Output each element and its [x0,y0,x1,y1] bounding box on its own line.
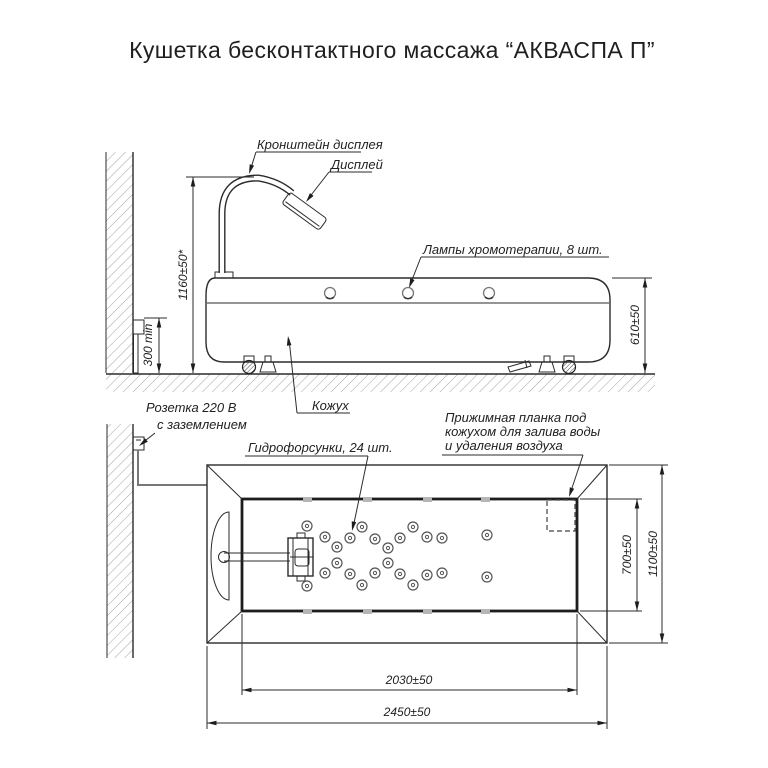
dim-1160-text: 1160±50* [176,249,190,300]
dimension-2030: 2030±50 [242,614,577,695]
label-lamps: Лампы хромотерапии, 8 шт. [407,242,609,289]
drawing-canvas: Кушетка бесконтактного массажа “АКВАСПА … [0,0,768,768]
dimension-700: 700±50 [580,499,642,611]
dim-2030-text: 2030±50 [385,673,433,687]
caster-wheel-right [563,356,576,374]
adjustable-foot-right [539,356,555,372]
hydro-nozzles [302,521,492,591]
wall-section-side [106,152,133,373]
socket-label-line1: Розетка 220 В [146,400,237,415]
display-head [282,192,327,230]
label-socket: Розетка 220 В с заземлением [138,400,247,448]
lamps-label: Лампы хромотерапии, 8 шт. [422,242,603,257]
headrest-ellipse [211,512,229,600]
dimension-610: 610±50 [612,278,652,373]
dim-2450-text: 2450±50 [383,705,431,719]
label-display: Дисплей [304,157,383,203]
floor-section-side [106,374,655,392]
side-view: Кронштейн дисплея Дисплей Лампы хромотер… [106,137,655,413]
nozzles-label: Гидрофорсунки, 24 шт. [248,440,393,455]
caster-wheel-left [243,356,256,374]
power-cable [138,450,207,485]
plate-label-line1: Прижимная планка под [445,410,586,425]
pressure-plate-dashed [547,500,575,531]
display-label: Дисплей [329,157,383,172]
dimension-300min: 300 min [141,318,167,373]
chromotherapy-lamp-icons [325,288,495,299]
cover-label: Кожух [312,398,349,413]
plate-label-line3: и удаления воздуха [445,438,563,453]
plate-label-line2: кожухом для залива воды [445,424,601,439]
couch-body [206,278,610,362]
plan-view: Розетка 220 В с заземлением Гидрофорсунк… [107,400,668,729]
display-bracket-label: Кронштейн дисплея [257,137,383,152]
dimension-1100: 1100±50 [609,465,668,643]
nozzle-carriage [219,533,314,581]
adjustable-foot-left [260,356,276,372]
dim-1100-text: 1100±50 [646,531,660,577]
socket-label-line2: с заземлением [157,417,247,432]
label-nozzles: Гидрофорсунки, 24 шт. [245,440,393,531]
wall-section-plan [107,424,133,658]
tub-frame [207,465,607,643]
dimension-2450: 2450±50 [207,646,607,729]
label-pressure-plate: Прижимная планка под кожухом для залива … [442,410,601,498]
dim-300-text: 300 min [141,323,155,366]
technical-drawing-page: Кушетка бесконтактного массажа “АКВАСПА … [0,0,768,768]
drawing-title: Кушетка бесконтактного массажа “АКВАСПА … [129,37,655,63]
rim-tick-marks [303,497,490,614]
display-arm [215,178,292,278]
dim-700-text: 700±50 [620,535,634,575]
dim-610-text: 610±50 [628,305,642,345]
